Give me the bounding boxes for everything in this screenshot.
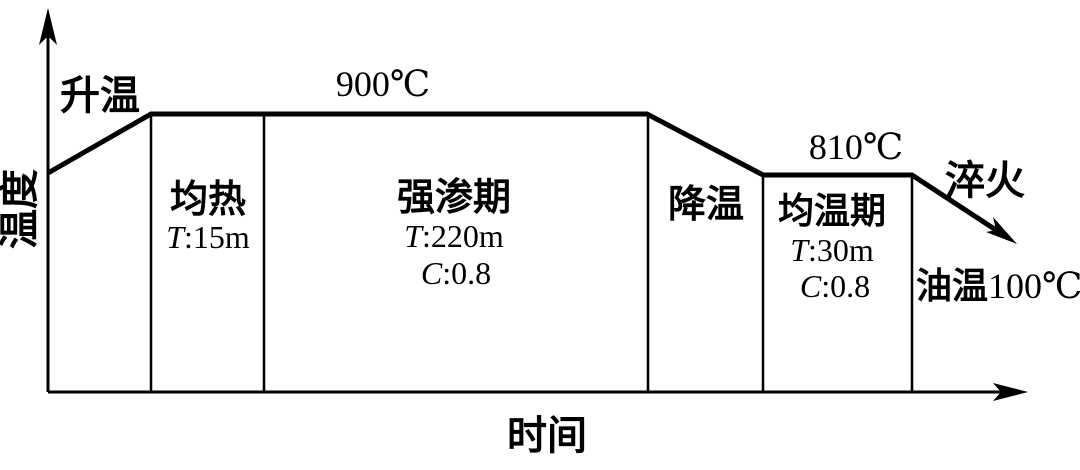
stage-carburize-time-value: :220m <box>422 218 504 254</box>
stage-soak-time: T:15m <box>166 221 250 253</box>
stage-soak-time-value: :15m <box>184 219 250 255</box>
quench-arrowhead-icon <box>986 217 1017 244</box>
quench-label: 淬火 <box>945 161 1025 201</box>
heat-treatment-process-diagram: 温度 时间 升温 900℃ 均热 T:15m 强渗期 T:220m C:0.8 … <box>0 0 1080 470</box>
stage-carburize-time: T:220m <box>404 220 504 252</box>
oil-temperature-label: 油温100℃ <box>916 268 1080 304</box>
stage-soak-name: 均热 <box>170 181 246 219</box>
stage-carburize-carbon-symbol: C <box>421 255 442 291</box>
second-temperature-annotation: 810℃ <box>809 129 903 165</box>
diagram-linework <box>0 0 1080 470</box>
stage-carburize-carbon-value: :0.8 <box>442 255 491 291</box>
stage-carburize-carbon: C:0.8 <box>421 257 491 289</box>
oil-temperature-value: 100℃ <box>988 266 1080 306</box>
y-axis-label: 温度 <box>0 169 40 249</box>
peak-temperature-annotation: 900℃ <box>336 66 430 102</box>
stage-equalize-carbon-value: :0.8 <box>821 268 870 304</box>
stage-equalize-time-value: :30m <box>808 232 874 268</box>
stage-equalize-time-symbol: T <box>790 232 808 268</box>
stage-carburize-name: 强渗期 <box>397 179 511 217</box>
stage-cooling-name: 降温 <box>668 186 744 224</box>
oil-temperature-text: 油温 <box>916 266 988 306</box>
x-axis-label: 时间 <box>507 416 587 456</box>
stage-carburize-time-symbol: T <box>404 218 422 254</box>
stage-equalize-carbon-symbol: C <box>800 268 821 304</box>
stage-equalize-name: 均温期 <box>778 193 886 229</box>
stage-equalize-carbon: C:0.8 <box>800 270 870 302</box>
heating-label: 升温 <box>60 76 140 116</box>
stage-soak-time-symbol: T <box>166 219 184 255</box>
stage-equalize-time: T:30m <box>790 234 874 266</box>
